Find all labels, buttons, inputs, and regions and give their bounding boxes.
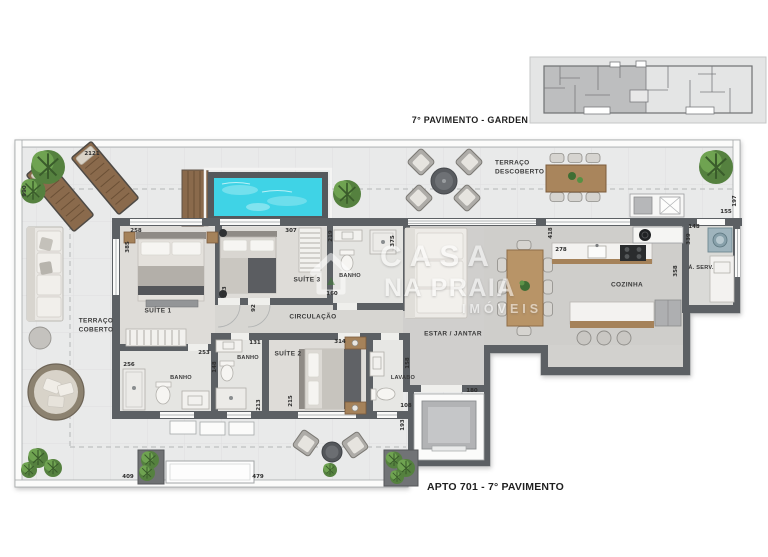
room-label-circulacao: CIRCULAÇÃO xyxy=(289,312,336,321)
room-label-suite-1: SUÍTE 1 xyxy=(144,306,171,315)
dimension-197: 197 xyxy=(732,195,738,206)
dimension-160: 160 xyxy=(326,291,337,297)
room-label-banho: BANHO xyxy=(339,272,361,280)
dimension-258: 258 xyxy=(130,228,141,234)
plant xyxy=(21,462,37,478)
white-planter xyxy=(166,461,254,483)
terrace-round-table xyxy=(431,168,457,194)
dimension-256: 256 xyxy=(123,362,134,368)
room-label-estar-jantar: ESTAR / JANTAR xyxy=(424,329,482,338)
floor-plan-page: 7° PAVIMENTO - GARDEN APTO 701 - 7° PAVI… xyxy=(0,0,768,557)
plant xyxy=(390,470,404,484)
plant xyxy=(139,465,155,481)
dimension-278: 278 xyxy=(555,247,566,253)
wall-bench-planters xyxy=(170,421,254,435)
room-label-lavabo: LAVABO xyxy=(391,374,415,382)
room-label-a-serv: Á. SERV. xyxy=(688,264,713,272)
dimension-213: 213 xyxy=(256,399,262,410)
elevator xyxy=(414,394,484,460)
dimension-148: 148 xyxy=(688,224,699,230)
room-label-terraco-descoberto: TERRAÇO DESCOBERTO xyxy=(495,159,544,178)
dimension-193: 193 xyxy=(400,419,406,430)
dimension-253: 253 xyxy=(198,350,209,356)
dimension-92: 92 xyxy=(251,304,257,312)
dimension-2121: 2121 xyxy=(84,151,99,157)
dimension-409: 409 xyxy=(122,474,133,480)
outdoor-dining-set xyxy=(546,154,606,202)
dimension-180: 180 xyxy=(466,388,477,394)
watermark: CASA NA PRAIA IMÓVEIS xyxy=(300,238,580,328)
dimension-990: 990 xyxy=(22,185,28,196)
watermark-brand-line2: NA PRAIA xyxy=(384,274,516,303)
bottom-terrace-table xyxy=(322,442,342,462)
dimension-219: 219 xyxy=(328,230,334,241)
dimension-339: 339 xyxy=(686,233,692,244)
plant xyxy=(699,150,733,184)
watermark-brand-line3: IMÓVEIS xyxy=(462,302,542,316)
swimming-pool xyxy=(205,169,331,225)
plant xyxy=(44,459,62,477)
dimension-307: 307 xyxy=(285,228,296,234)
room-label-banho: BANHO xyxy=(237,354,259,362)
dimension-479: 479 xyxy=(252,474,263,480)
room-label-suite-2: SUÍTE 2 xyxy=(274,349,301,358)
suite1-bed xyxy=(124,232,218,307)
dimension-158: 158 xyxy=(405,357,411,368)
unit-title: APTO 701 - 7° PAVIMENTO xyxy=(427,481,564,493)
room-label-suite-3: SUÍTE 3 xyxy=(293,275,320,284)
key-plan xyxy=(530,57,766,123)
dimension-358: 358 xyxy=(673,265,679,276)
dimension-213: 213 xyxy=(222,286,228,297)
dimension-155: 155 xyxy=(720,209,731,215)
plant xyxy=(323,463,337,477)
dimension-418: 418 xyxy=(548,227,554,238)
round-daybed xyxy=(28,364,84,420)
kitchen-tall-units xyxy=(633,227,683,243)
dimension-314: 314 xyxy=(334,339,345,345)
room-label-banho: BANHO xyxy=(170,374,192,382)
watermark-brand-line1: CASA xyxy=(380,240,497,274)
dimension-375: 375 xyxy=(390,235,396,246)
plant xyxy=(333,180,361,208)
dimension-215: 215 xyxy=(288,395,294,406)
dimension-148: 148 xyxy=(212,361,218,372)
dimension-131: 131 xyxy=(249,340,260,346)
dimension-108: 108 xyxy=(400,403,411,409)
room-label-terraco-coberto: TERRAÇO COBERTO xyxy=(79,317,114,336)
key-plan-title: 7° PAVIMENTO - GARDEN xyxy=(412,115,528,125)
room-label-cozinha: COZINHA xyxy=(611,280,643,289)
suite1-closet xyxy=(126,329,186,346)
dimension-385: 385 xyxy=(125,241,131,252)
terrace-grill-station xyxy=(630,194,684,217)
